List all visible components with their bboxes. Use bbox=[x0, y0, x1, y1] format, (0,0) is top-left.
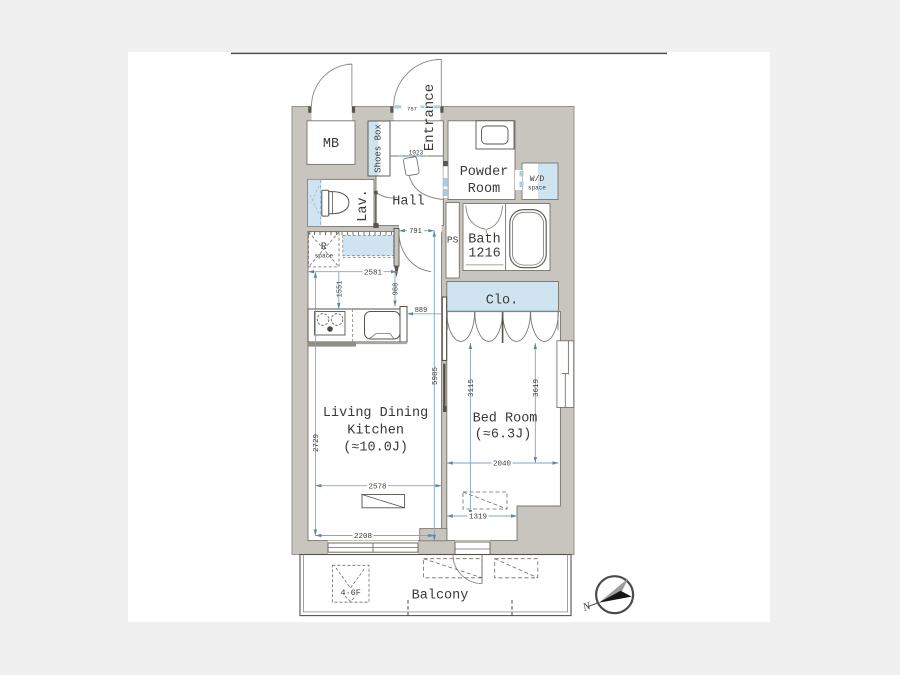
svg-text:Shoes Box: Shoes Box bbox=[374, 124, 384, 173]
svg-text:1551: 1551 bbox=[336, 281, 344, 298]
svg-text:988: 988 bbox=[393, 283, 401, 296]
svg-text:3115: 3115 bbox=[468, 379, 476, 398]
svg-text:4·6F: 4·6F bbox=[340, 588, 360, 598]
svg-text:W/D: W/D bbox=[530, 175, 545, 184]
svg-text:Lav.: Lav. bbox=[356, 189, 371, 221]
svg-text:Entrance: Entrance bbox=[422, 84, 438, 151]
svg-text:Bath: Bath bbox=[468, 233, 500, 248]
svg-text:Living Dining: Living Dining bbox=[323, 406, 428, 421]
svg-text:1216: 1216 bbox=[468, 247, 500, 262]
svg-text:(≈10.0J): (≈10.0J) bbox=[343, 441, 408, 456]
svg-text:2578: 2578 bbox=[368, 483, 386, 491]
svg-text:Kitchen: Kitchen bbox=[347, 423, 404, 438]
svg-text:R: R bbox=[321, 242, 327, 253]
svg-text:Powder: Powder bbox=[460, 165, 509, 180]
svg-text:2581: 2581 bbox=[364, 269, 383, 277]
svg-text:889: 889 bbox=[415, 307, 428, 315]
svg-text:Bed Room: Bed Room bbox=[473, 412, 538, 427]
svg-text:5985: 5985 bbox=[432, 367, 440, 386]
svg-text:Balcony: Balcony bbox=[412, 589, 469, 604]
svg-text:2040: 2040 bbox=[493, 461, 512, 469]
svg-text:MB: MB bbox=[323, 137, 339, 152]
svg-text:Room: Room bbox=[468, 182, 500, 197]
svg-text:(≈6.3J): (≈6.3J) bbox=[475, 428, 532, 443]
svg-text:2729: 2729 bbox=[313, 434, 321, 452]
svg-text:3619: 3619 bbox=[533, 379, 541, 397]
svg-text:791: 791 bbox=[409, 228, 422, 236]
svg-text:space: space bbox=[528, 185, 546, 192]
svg-text:1319: 1319 bbox=[469, 514, 487, 522]
svg-text:757: 757 bbox=[407, 106, 417, 113]
svg-text:space: space bbox=[315, 253, 334, 260]
svg-text:PS: PS bbox=[447, 235, 459, 246]
svg-text:2208: 2208 bbox=[354, 533, 372, 541]
svg-text:Clo.: Clo. bbox=[486, 294, 518, 309]
svg-text:Hall: Hall bbox=[392, 195, 424, 210]
